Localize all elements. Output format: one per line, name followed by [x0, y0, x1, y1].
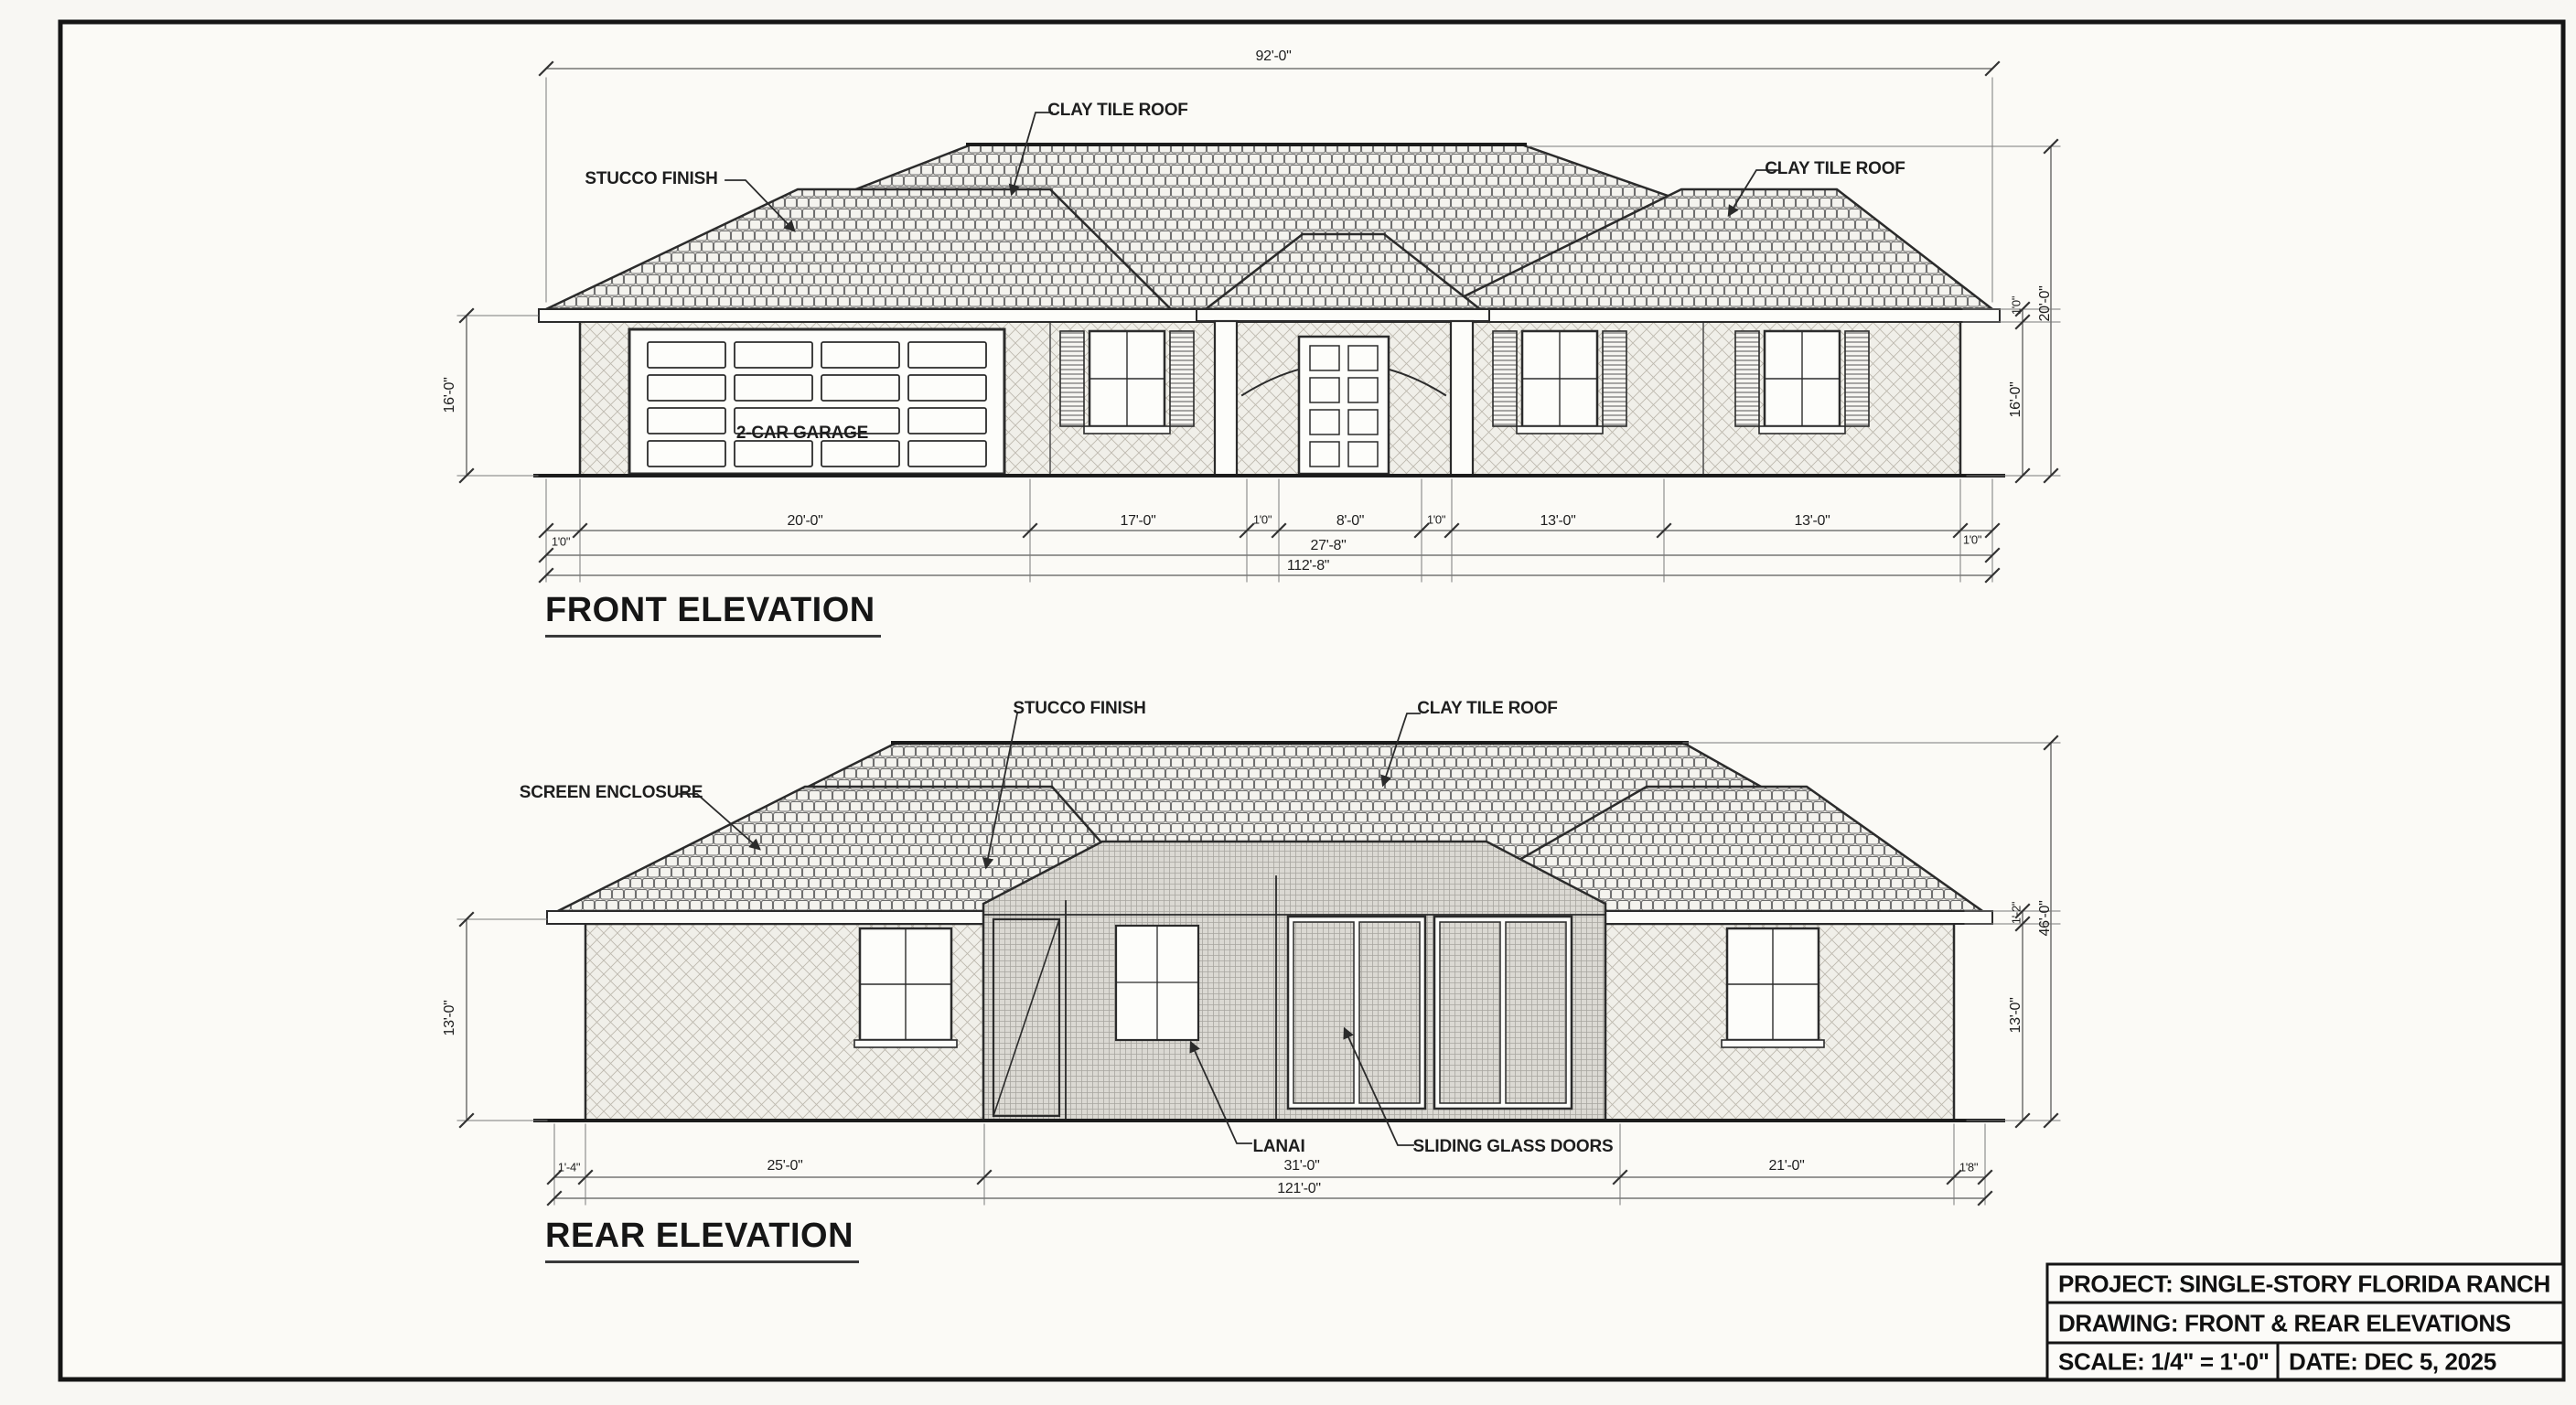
rear-elevation-title: REAR ELEVATION [545, 1217, 859, 1263]
front-peak-height-dim: 20'-0" [2037, 286, 2054, 322]
front-wall-height-dim: 16'-0" [2008, 382, 2024, 418]
front-left-height-dim: 16'-0" [442, 378, 458, 413]
rear-sliding-label: SLIDING GLASS DOORS [1413, 1137, 1614, 1157]
rear-bottom-dim: 1'8" [1959, 1161, 1978, 1174]
rear-peak-height-dim: 46'-0" [2037, 901, 2054, 937]
front-bottom-dim: 1'0" [1963, 533, 1981, 547]
front-total-width-dim: 92'-0" [1256, 48, 1292, 65]
front-garage-label: 2-CAR GARAGE [736, 424, 868, 444]
rear-eave-offset-dim: 1'-2" [2010, 902, 2023, 924]
front-eave-offset-dim: 1'0" [2010, 296, 2023, 315]
front-bottom-dim: 8'-0" [1336, 513, 1364, 530]
rear-window-left [854, 928, 957, 1047]
rear-full-width-dim: 121'-0" [1277, 1181, 1321, 1197]
title-block-date: DATE: DEC 5, 2025 [2289, 1348, 2496, 1377]
blueprint-sheet: 92'-0" STUCCO FINISH CLAY TILE ROOF CLAY… [0, 0, 2576, 1405]
front-bottom-dim: 13'-0" [1540, 513, 1576, 530]
rear-bottom-dim: 1'-4" [558, 1161, 580, 1174]
rear-wall-height-dim: 13'-0" [2008, 998, 2024, 1034]
rear-lanai-label: LANAI [1252, 1137, 1304, 1157]
front-bottom-dim: 17'-0" [1121, 513, 1156, 530]
title-block-project: PROJECT: SINGLE-STORY FLORIDA RANCH [2058, 1271, 2550, 1299]
enclosure-house-window [1116, 926, 1198, 1040]
rear-bottom-dim: 25'-0" [767, 1158, 803, 1174]
front-bottom-dim: 1'0" [1427, 513, 1445, 527]
front-garage-door [629, 329, 1004, 474]
front-bottom-dim: 1'0" [1253, 513, 1272, 527]
rear-bottom-dim: 31'-0" [1284, 1158, 1320, 1174]
front-full-width-dim: 112'-8" [1287, 558, 1329, 574]
front-entry-door [1299, 337, 1389, 474]
front-stucco-label: STUCCO FINISH [585, 169, 717, 189]
front-window-right [1735, 331, 1869, 434]
title-block-drawing: DRAWING: FRONT & REAR ELEVATIONS [2058, 1310, 2511, 1338]
rear-stucco-label: STUCCO FINISH [1013, 699, 1145, 719]
front-clay-left-label: CLAY TILE ROOF [1047, 101, 1187, 121]
rear-bottom-dim: 21'-0" [1769, 1158, 1805, 1174]
rear-left-height-dim: 13'-0" [442, 1001, 458, 1036]
title-block-scale: SCALE: 1/4" = 1'-0" [2058, 1348, 2270, 1377]
rear-screen-label: SCREEN ENCLOSURE [520, 783, 703, 803]
rear-window-right [1722, 928, 1824, 1047]
front-bottom-dim: 1'0" [552, 535, 570, 549]
front-elevation-title: FRONT ELEVATION [545, 591, 881, 638]
front-window-middle [1493, 331, 1626, 434]
front-bottom-dim: 20'-0" [788, 513, 823, 530]
front-window-left [1060, 331, 1194, 434]
rear-clay-label: CLAY TILE ROOF [1417, 699, 1557, 719]
rear-screen-enclosure [983, 842, 1605, 1121]
front-clay-right-label: CLAY TILE ROOF [1765, 159, 1905, 179]
front-mid-width-dim: 27'-8" [1311, 538, 1347, 554]
front-bottom-dim: 13'-0" [1795, 513, 1830, 530]
